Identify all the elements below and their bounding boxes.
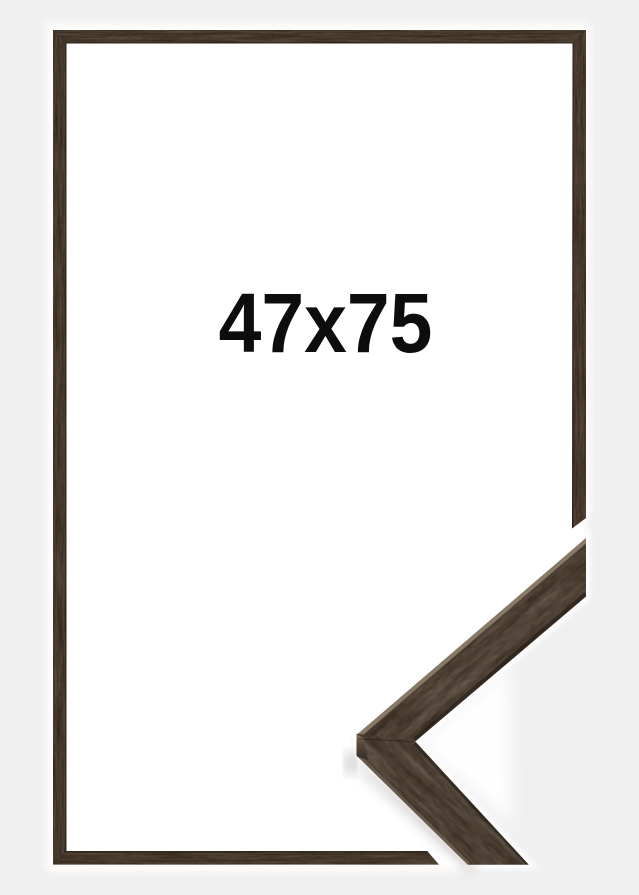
- svg-text:47x75: 47x75: [219, 276, 433, 370]
